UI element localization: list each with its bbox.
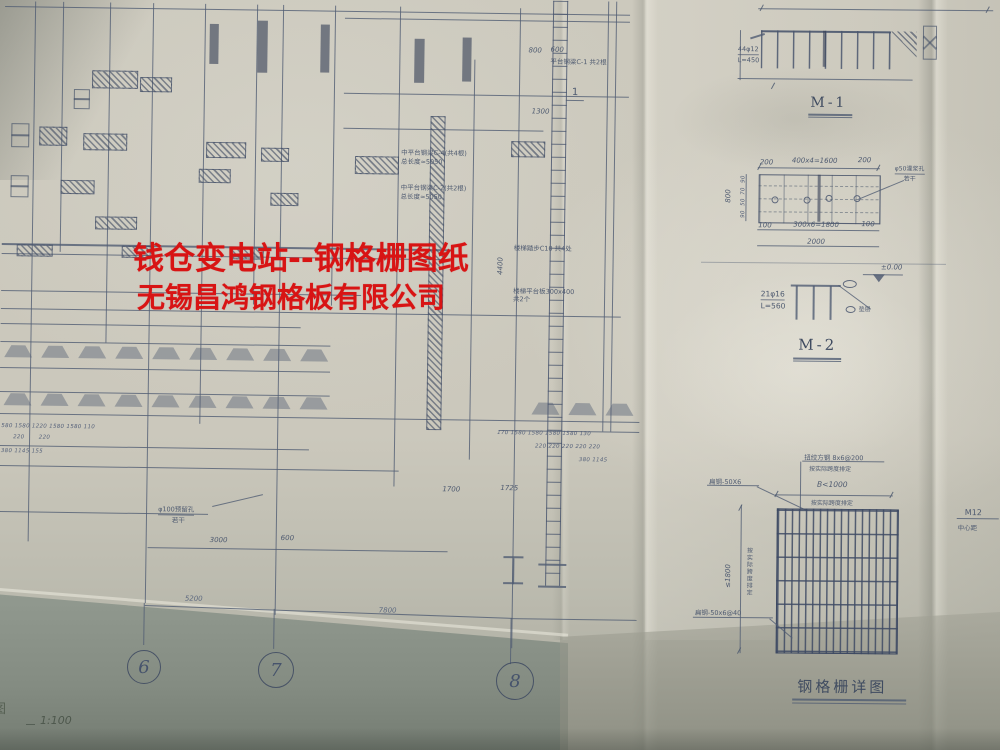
m2-total-dim: 2000	[807, 238, 825, 246]
grating-height-dim-line	[740, 505, 742, 653]
m2-top-dim-line	[758, 167, 880, 169]
scale-prefix-clipped: 图	[0, 698, 9, 717]
crossbar-leader	[800, 462, 801, 510]
m2-bottom-dim-right: 100	[861, 220, 874, 228]
grating-width-note: 按实际跨度排定	[811, 498, 853, 507]
top-dim-line	[758, 8, 993, 11]
details-layer: 44φ12 L=450 M-1 200 400x4=1600 200 φ50灌浆…	[0, 0, 1000, 750]
grating-caption: 钢格栅详图	[797, 676, 887, 698]
m1-center-tooth	[823, 31, 826, 67]
bottom-flat-underline	[693, 617, 773, 619]
caption-underline2	[792, 703, 906, 705]
m1-end-wedge	[891, 31, 917, 57]
scale-label: 1:100	[40, 714, 72, 727]
m2-bottom-dim-line	[757, 229, 879, 231]
level-triangle-icon	[873, 274, 885, 282]
m2-title-underline2	[793, 361, 841, 362]
m1-bottom-line	[738, 78, 913, 81]
axis-bubble-7: 7	[258, 652, 294, 688]
dim-tick	[771, 83, 775, 90]
grating-width-label: B<1000	[817, 480, 848, 489]
crossbar-note: 按实际跨度排定	[809, 464, 851, 473]
m2-hole-callout-qty: 若干	[904, 174, 916, 183]
edge-bolt-label: M12	[965, 508, 982, 517]
m2-left-seg: 90	[740, 175, 746, 183]
axis-bubble-8-label: 8	[509, 671, 520, 692]
axis-bubble-8: 8	[496, 662, 534, 700]
m2-title: M-2	[798, 336, 837, 354]
fold-ghost-line	[701, 262, 946, 265]
m2-elev-top	[791, 285, 841, 287]
pad-symbol	[846, 306, 856, 313]
edge-note: 中心距	[958, 522, 978, 532]
scale-dash	[26, 724, 35, 725]
grout-hole	[826, 195, 833, 202]
m2-length-label: L=560	[761, 301, 786, 310]
grating-panel	[776, 508, 899, 654]
m1-title-underline	[808, 114, 852, 116]
m2-left-seg: 90	[740, 210, 746, 218]
caption-underline	[792, 699, 906, 702]
m2-rebar-label: 21φ16	[761, 289, 785, 300]
m1-length-label: L=450	[738, 56, 760, 64]
pad-symbol-upper	[843, 280, 857, 288]
bottom-flat-callout: 扁钢-50x6@40	[695, 607, 741, 617]
grating-width-dim-line	[775, 494, 893, 496]
axis-bubble-6-label: 6	[138, 657, 149, 678]
axis-bubble-6: 6	[127, 650, 161, 684]
edge-bolt-underline	[957, 518, 999, 519]
pad-note: 垫层	[859, 304, 871, 313]
m2-top-dim-left: 200	[760, 158, 773, 166]
m2-left-seg: 50	[740, 198, 746, 206]
m2-bottom-dim-left: 100	[758, 221, 771, 229]
m1-title-underline2	[808, 117, 852, 118]
m2-left-total: 800	[724, 189, 732, 202]
m2-top-dim-right: 200	[858, 156, 871, 164]
m2-anchor-bar	[812, 286, 814, 320]
m2-title-underline	[793, 358, 841, 360]
m1-anchor-plate	[923, 26, 937, 60]
grating-height-note: 按实际跨度排定	[744, 547, 753, 596]
watermark-line2: 无锡昌鸿钢格板有限公司	[137, 276, 445, 316]
grout-hole	[804, 197, 811, 204]
grating-height-label: ≤1800	[724, 564, 732, 588]
m2-bottom-dim-mid: 300x6=1800	[793, 221, 839, 229]
m2-top-dim-mid: 400x4=1600	[792, 157, 838, 165]
flat-steel-underline	[707, 485, 759, 486]
m2-anchor-bar	[795, 286, 797, 320]
m1-rebar-label: 44φ12	[738, 45, 759, 55]
watermark-line1: 钱仓变电站--钢格栅图纸	[133, 233, 469, 278]
m2-left-seg: 70	[740, 187, 746, 195]
m1-title: M-1	[810, 95, 847, 111]
blueprint-photo: 800 600 1300 4400 1700 1725 3000 600 580…	[0, 0, 1000, 750]
level-value: ±0.00	[881, 263, 903, 271]
axis-bubble-7-label: 7	[270, 660, 281, 681]
grout-hole	[772, 196, 779, 203]
crossbar-underline	[802, 461, 884, 463]
m2-anchor-bar	[829, 286, 831, 320]
